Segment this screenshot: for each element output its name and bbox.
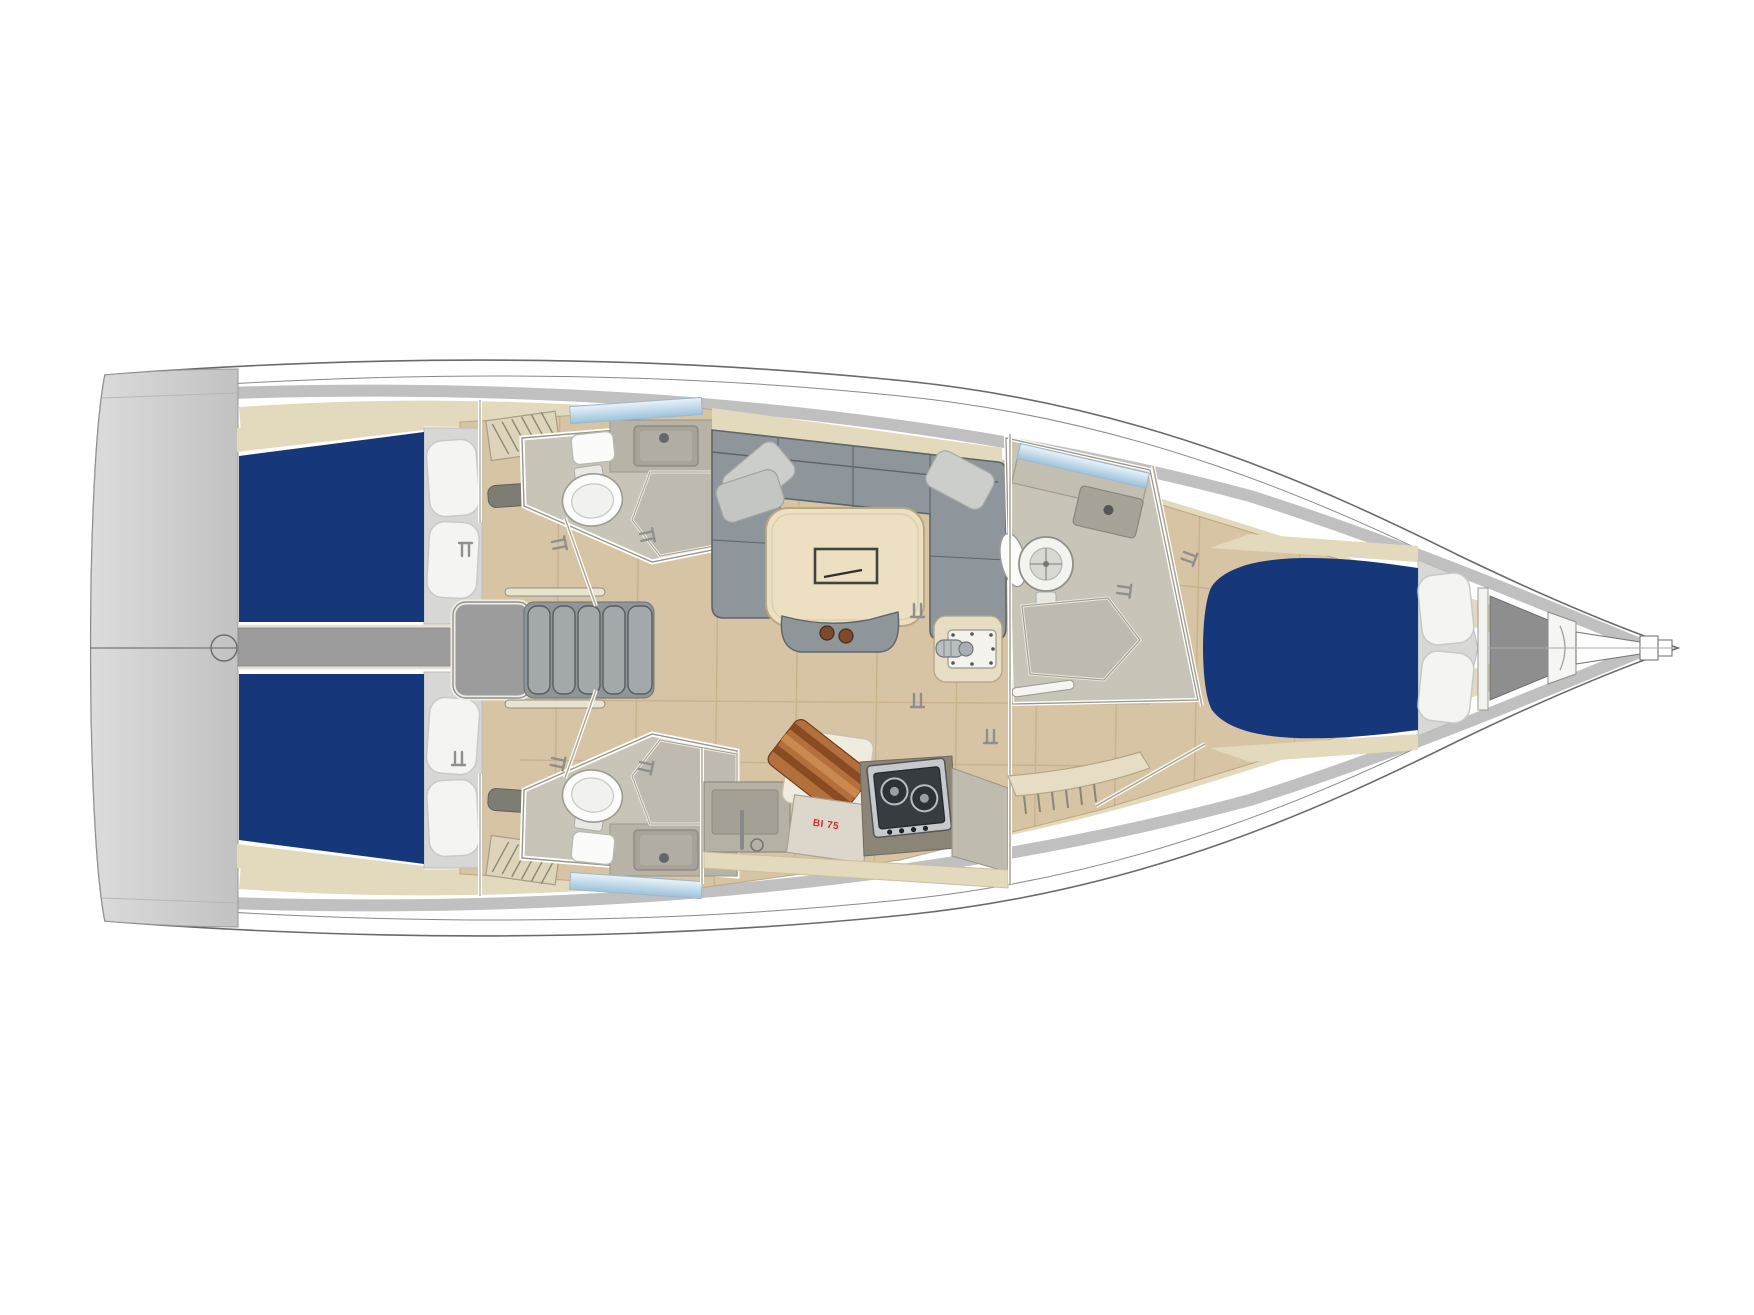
fridge-unit: BI 75: [786, 795, 871, 863]
galley-sink-basin: [712, 790, 778, 834]
stair-treads: [528, 606, 652, 694]
chain-bulkhead: [1478, 588, 1488, 710]
berth-mattress-blue: [239, 674, 424, 864]
pillow: [426, 521, 480, 600]
mast-post: [959, 642, 973, 656]
yacht-floorplan-page: BI 75: [0, 0, 1754, 1315]
salon-table: [766, 508, 924, 626]
pillow: [425, 696, 480, 775]
faucet-icon: [659, 853, 669, 863]
cupholder: [839, 629, 853, 643]
companionway-well: [453, 602, 531, 698]
boat-floorplan-drawing: BI 75: [0, 0, 1754, 1315]
hatch-lid: [571, 831, 616, 865]
stove-icon: [867, 758, 952, 838]
companionway-stairs: [505, 588, 654, 708]
pillow: [1416, 649, 1475, 724]
pillow: [1416, 571, 1475, 646]
hatch-lid: [571, 431, 616, 465]
mast-step: [934, 616, 1002, 682]
pillow: [425, 438, 480, 517]
pillow: [426, 779, 480, 858]
cupholder: [820, 626, 834, 640]
berth-mattress-blue: [239, 432, 424, 622]
berth-mattress-blue: [1203, 558, 1418, 738]
transom-swim-platform: [90, 369, 240, 927]
faucet-icon: [659, 433, 669, 443]
bow: [1478, 588, 1672, 710]
engine-box: [238, 628, 460, 666]
